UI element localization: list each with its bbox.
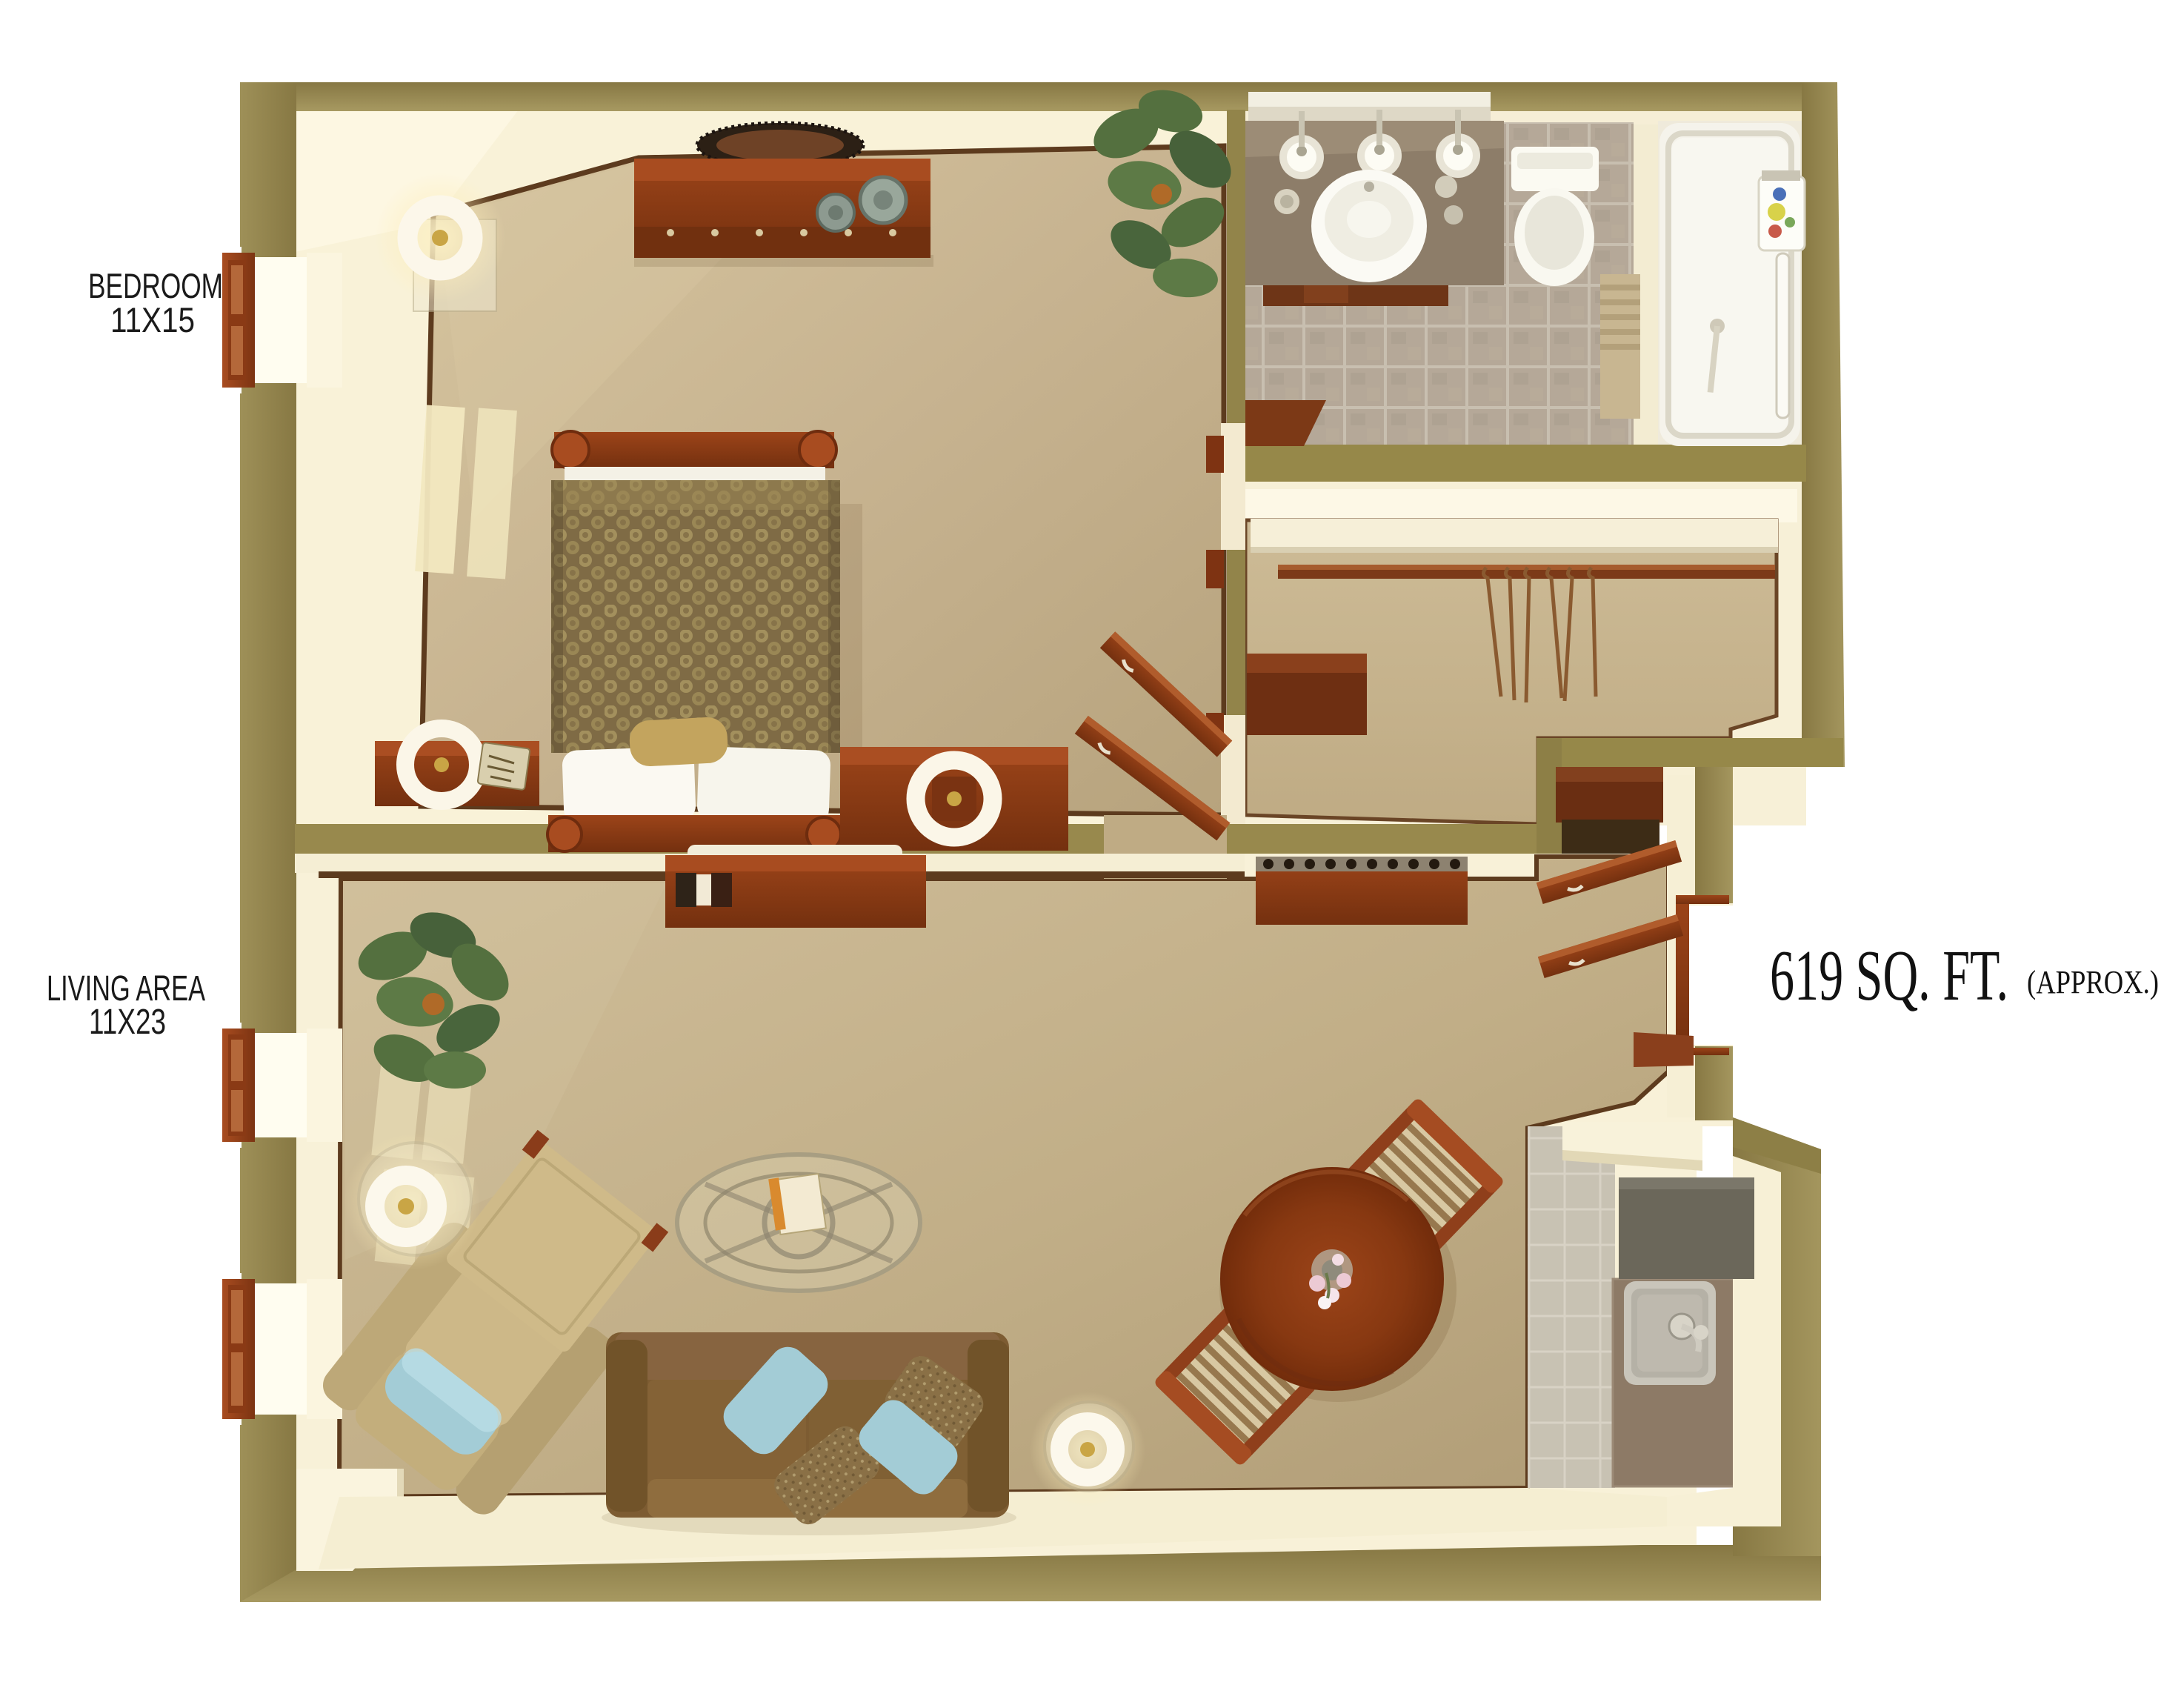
svg-text:619 SQ. FT.: 619 SQ. FT. [1770,936,2008,1016]
svg-text:(APPROX.): (APPROX.) [2027,964,2159,1000]
svg-text:11X23: 11X23 [89,1003,166,1042]
svg-text:11X15: 11X15 [110,300,195,339]
